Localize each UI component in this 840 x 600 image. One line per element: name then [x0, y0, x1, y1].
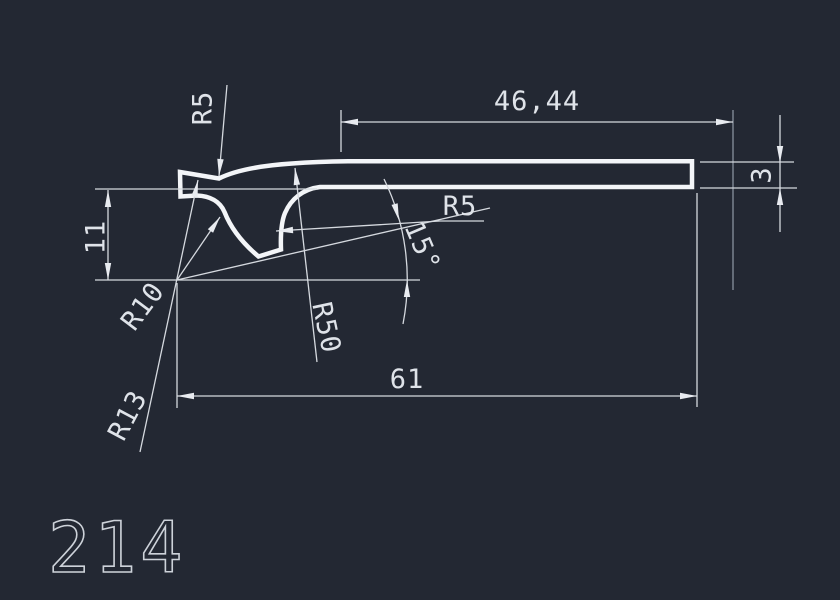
arrowhead	[404, 280, 410, 297]
angle-arc	[384, 179, 407, 324]
arrowhead	[177, 393, 194, 399]
arrowhead	[680, 393, 697, 399]
dimension-radius-r10[interactable]: R10	[115, 217, 220, 336]
dimension-radius-r50[interactable]: R50	[294, 168, 347, 362]
dimension-text[interactable]: R10	[115, 276, 171, 336]
dimension-radius-top[interactable]: R5	[188, 85, 228, 176]
dimension-length-bottom[interactable]: 61	[177, 193, 697, 408]
dimension-text[interactable]: R5	[188, 91, 219, 126]
dimension-text[interactable]: R13	[102, 385, 154, 445]
arrowhead	[217, 159, 223, 176]
part-number-label: 214	[48, 507, 186, 589]
dimension-text[interactable]: R50	[305, 299, 346, 356]
cad-viewport[interactable]: 46,44 3 11 61	[0, 0, 840, 600]
drawing-canvas[interactable]: 46,44 3 11 61	[0, 0, 840, 600]
dimension-text[interactable]: 3	[747, 166, 778, 183]
dimension-text[interactable]: 46,44	[494, 86, 580, 117]
arrowhead	[105, 190, 111, 207]
arrowhead	[777, 146, 783, 163]
arrowhead	[716, 119, 733, 125]
arrowhead	[777, 188, 783, 205]
dimension-radius-fillet[interactable]: R5	[276, 191, 484, 233]
dimension-text[interactable]: 11	[81, 220, 112, 255]
dimension-thickness[interactable]: 3	[700, 115, 797, 232]
leader-line	[276, 221, 484, 231]
arrowhead	[105, 263, 111, 280]
arrowhead	[276, 227, 293, 233]
dimension-text[interactable]: 61	[390, 364, 425, 395]
arrowhead	[208, 217, 220, 233]
arrowhead	[392, 203, 400, 220]
dimension-height[interactable]: 11	[81, 189, 421, 280]
dimension-text[interactable]: R5	[443, 191, 478, 222]
arrowhead	[341, 119, 358, 125]
